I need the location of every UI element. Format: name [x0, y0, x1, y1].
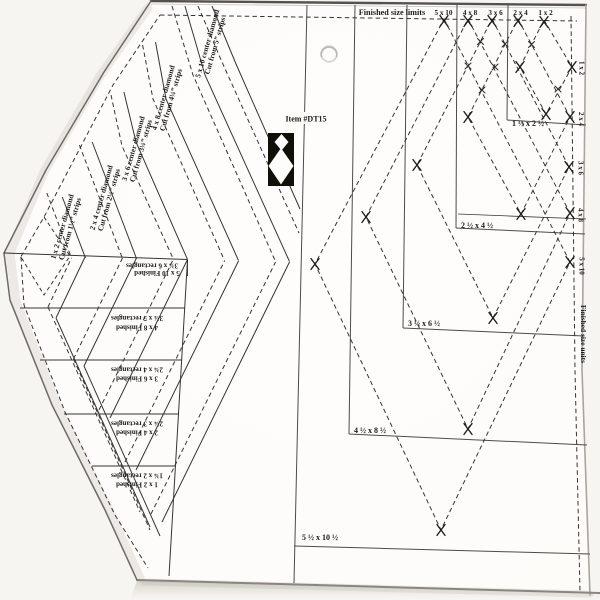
svg-text:Item #DT15: Item #DT15: [285, 115, 326, 124]
svg-text:2¼ x 3 rectangles: 2¼ x 3 rectangles: [111, 420, 163, 428]
svg-text:2 x 4: 2 x 4: [513, 9, 528, 17]
svg-text:3 x 6: 3 x 6: [488, 9, 503, 17]
svg-text:3 ½ x 6 ½: 3 ½ x 6 ½: [408, 319, 440, 328]
svg-text:2 x 4: 2 x 4: [577, 112, 585, 127]
svg-text:3 x 6: 3 x 6: [577, 161, 585, 176]
svg-text:5 x 10: 5 x 10: [578, 257, 586, 275]
svg-text:1¾ x 2 rectangles: 1¾ x 2 rectangles: [111, 472, 163, 480]
svg-text:4 x 8 Finished: 4 x 8 Finished: [116, 324, 158, 332]
svg-text:5 x 10: 5 x 10: [435, 9, 453, 17]
svg-text:5 ½ x 10 ½: 5 ½ x 10 ½: [302, 533, 338, 542]
svg-text:Finished size limits: Finished size limits: [359, 8, 425, 17]
svg-text:1 x 2: 1 x 2: [538, 9, 553, 17]
svg-text:3¼ x 5 rectangles: 3¼ x 5 rectangles: [111, 314, 163, 322]
svg-text:2 ½ x 4 ½: 2 ½ x 4 ½: [461, 221, 493, 230]
svg-text:1 x 2: 1 x 2: [578, 61, 586, 76]
svg-text:2¾ x 4 rectangles: 2¾ x 4 rectangles: [111, 366, 163, 374]
svg-text:4 x 8: 4 x 8: [463, 9, 478, 17]
svg-text:3 x 6 Finished: 3 x 6 Finished: [116, 375, 158, 383]
svg-text:4 x 8: 4 x 8: [577, 208, 585, 223]
svg-text:1 x 2 Finished: 1 x 2 Finished: [116, 481, 158, 489]
svg-text:Finished size units: Finished size units: [579, 305, 588, 363]
svg-text:1 ½ x 2 ½: 1 ½ x 2 ½: [512, 119, 544, 128]
svg-text:4 ½ x 8 ½: 4 ½ x 8 ½: [354, 426, 386, 435]
svg-text:2 x 4 Finished: 2 x 4 Finished: [116, 429, 158, 437]
svg-text:3¾ x 6 rectangles: 3¾ x 6 rectangles: [126, 262, 178, 270]
